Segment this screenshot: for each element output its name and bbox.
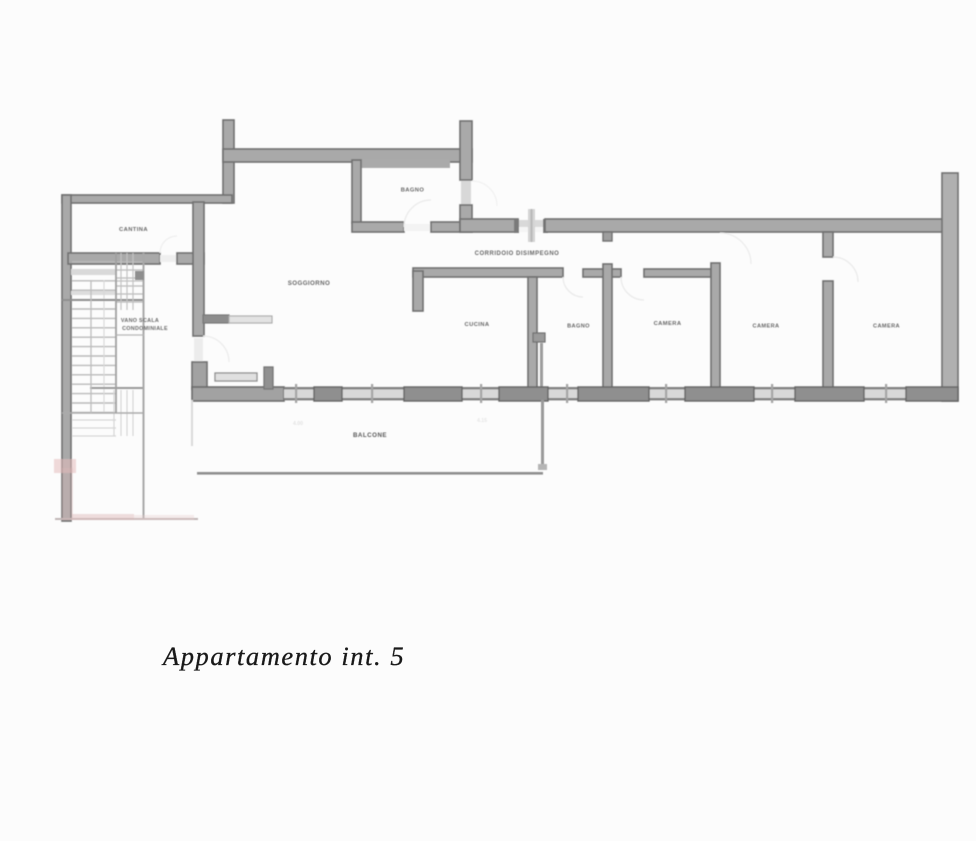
svg-text:BALCONE: BALCONE	[353, 432, 387, 439]
svg-text:CAMERA: CAMERA	[753, 324, 780, 330]
svg-text:Appartamento int. 5: Appartamento int. 5	[161, 641, 405, 671]
svg-text:CAMERA: CAMERA	[654, 321, 682, 327]
svg-text:BAGNO: BAGNO	[567, 324, 590, 330]
svg-text:CONDOMINIALE: CONDOMINIALE	[122, 326, 168, 332]
svg-text:SOGGIORNO: SOGGIORNO	[288, 280, 330, 287]
svg-text:VANO SCALA: VANO SCALA	[121, 318, 159, 324]
svg-text:4.15: 4.15	[477, 418, 487, 424]
svg-text:CANTINA: CANTINA	[119, 227, 148, 233]
svg-text:CORRIDOIO DISIMPEGNO: CORRIDOIO DISIMPEGNO	[475, 251, 560, 257]
svg-text:BAGNO: BAGNO	[401, 188, 425, 194]
svg-text:4.00: 4.00	[293, 421, 303, 427]
svg-text:CAMERA: CAMERA	[873, 324, 900, 330]
svg-text:CUCINA: CUCINA	[465, 322, 490, 328]
